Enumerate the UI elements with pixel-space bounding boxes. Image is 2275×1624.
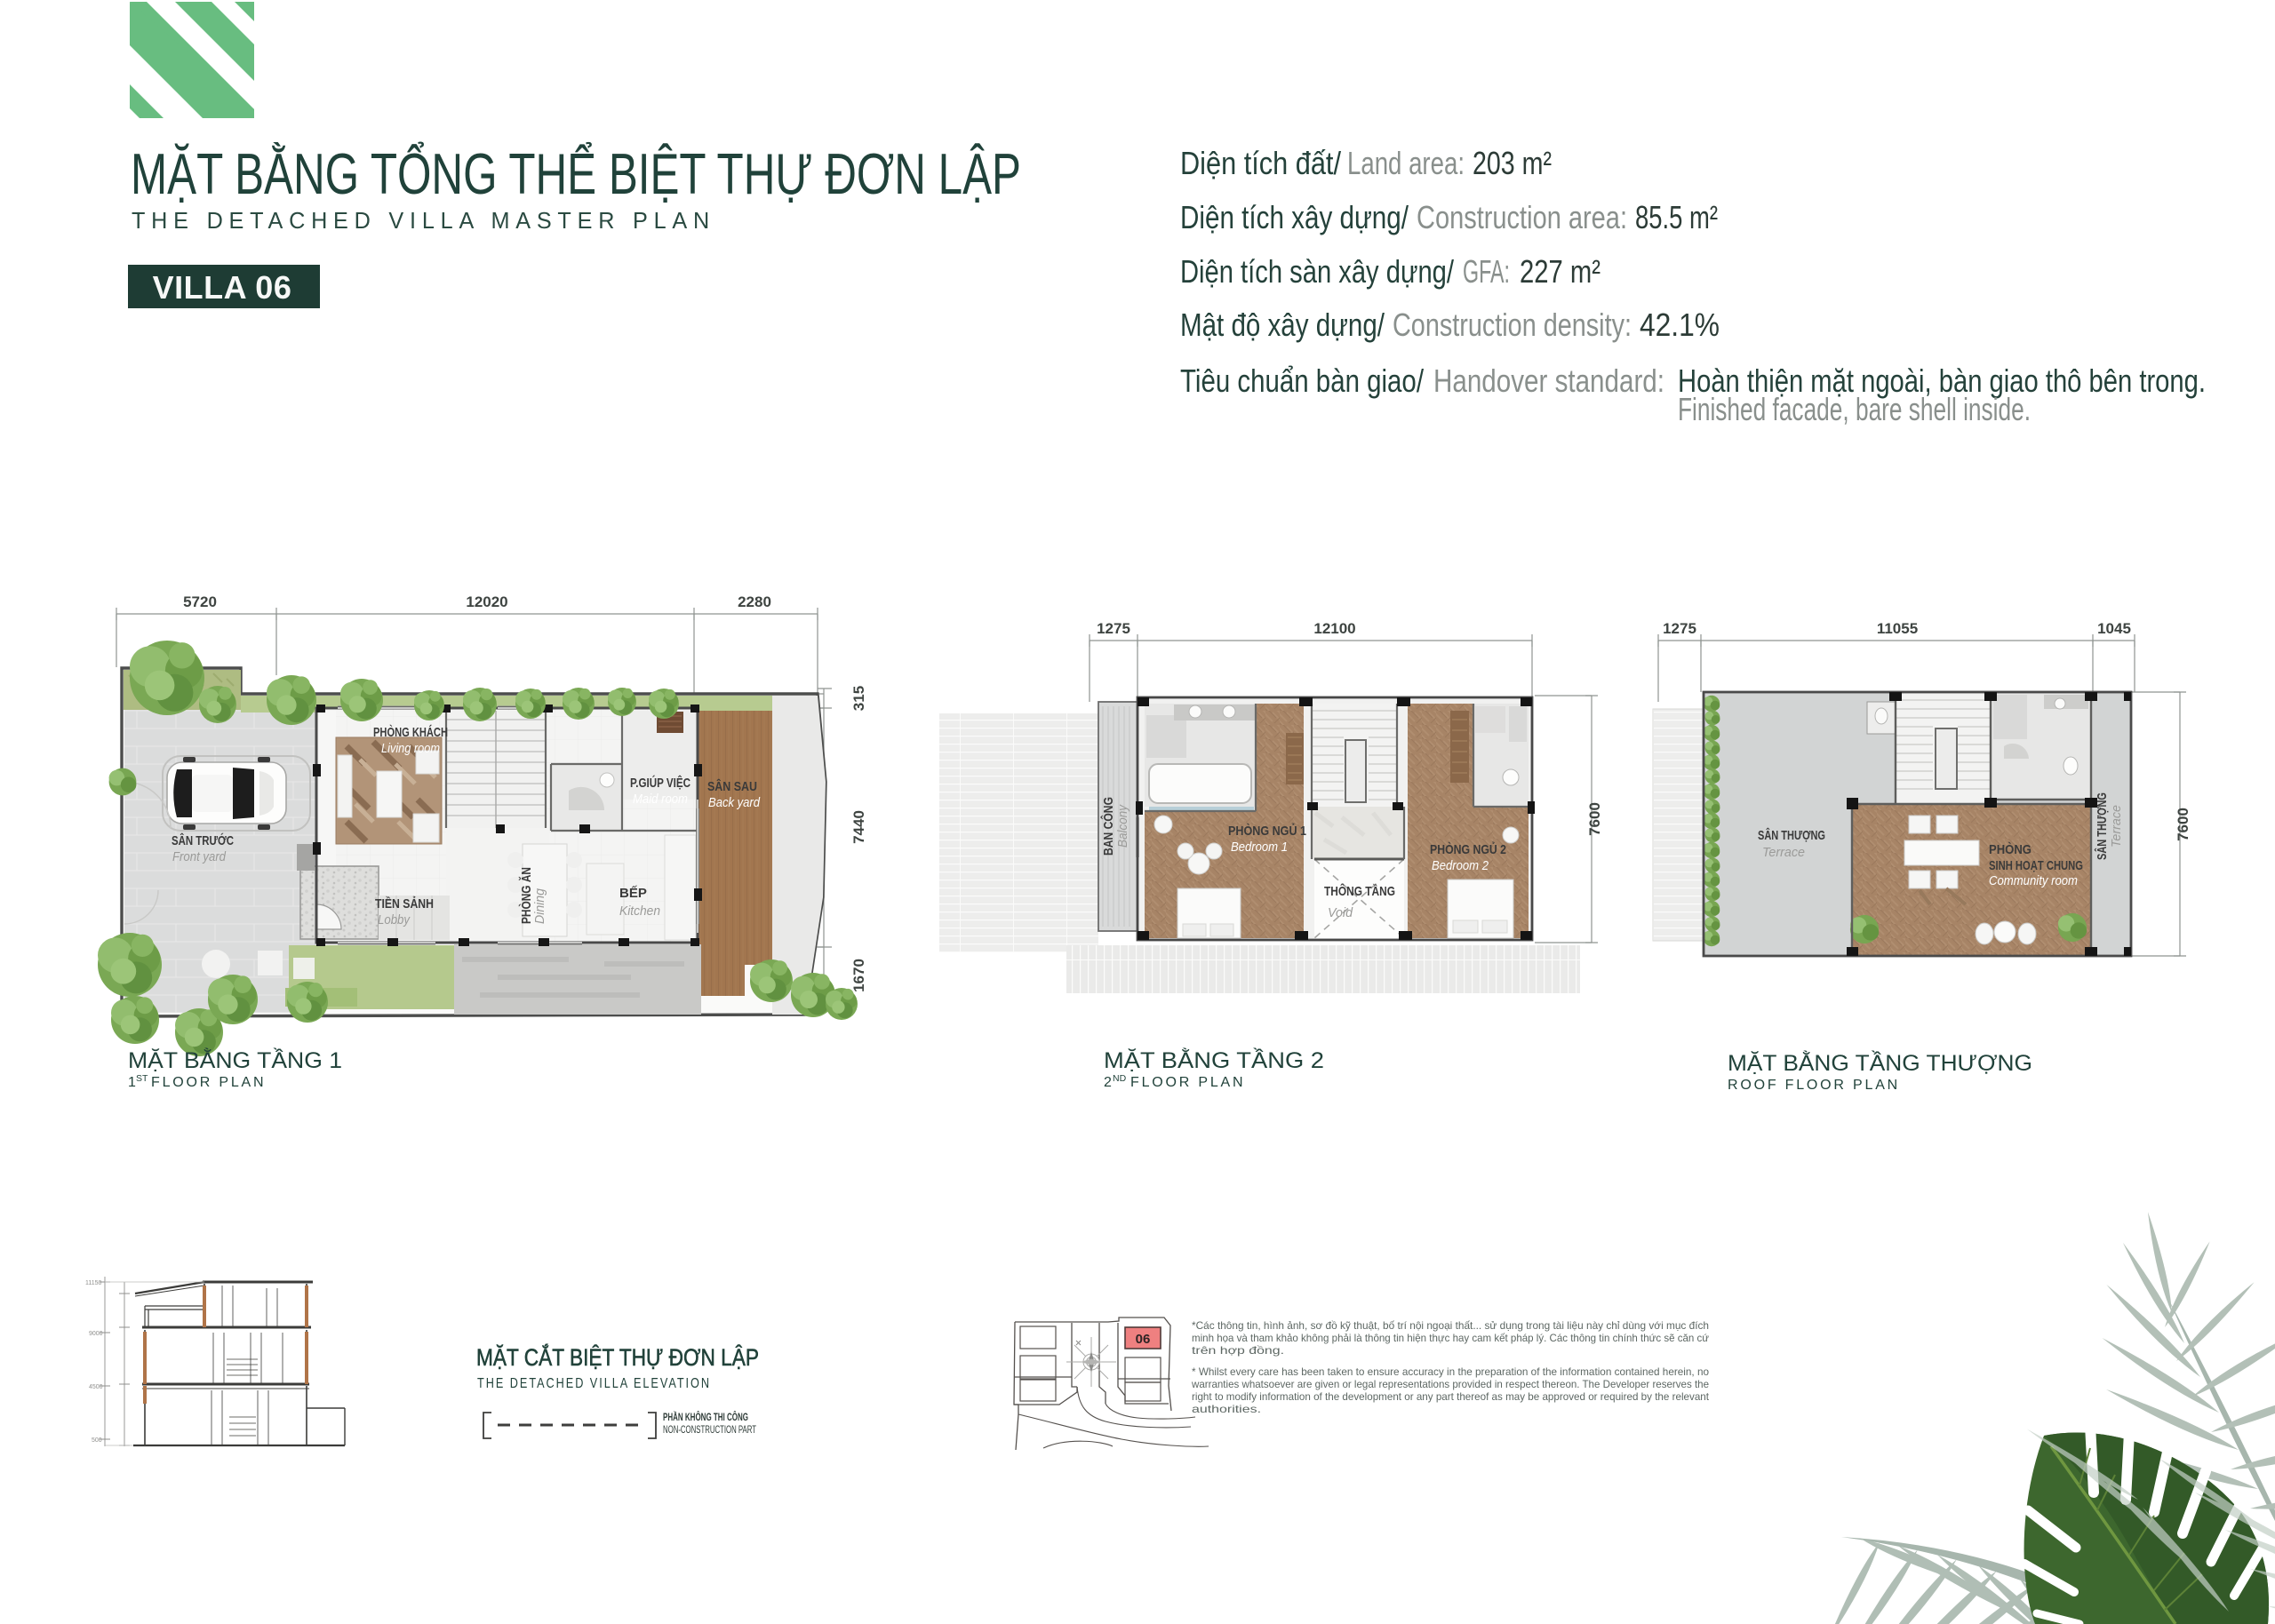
svg-text:FLOOR PLAN: FLOOR PLAN [151, 1075, 266, 1090]
svg-text:Dining: Dining [533, 888, 547, 924]
svg-text:Lobby: Lobby [378, 913, 411, 927]
svg-text:MẶT BẰNG TẦNG 1: MẶT BẰNG TẦNG 1 [128, 1047, 342, 1073]
svg-text:1045: 1045 [2097, 620, 2131, 637]
svg-text:Kitchen: Kitchen [619, 904, 660, 919]
svg-text:7600: 7600 [2175, 808, 2191, 841]
svg-text:MẶT BẰNG TẦNG THƯỢNG: MẶT BẰNG TẦNG THƯỢNG [1728, 1050, 2032, 1076]
svg-text:FLOOR PLAN: FLOOR PLAN [1130, 1075, 1245, 1090]
svg-text:warranties whatsoever are give: warranties whatsoever are given or legal… [1191, 1378, 1709, 1390]
svg-text:06: 06 [1136, 1332, 1151, 1347]
svg-text:PHÒNG NGỦ 2: PHÒNG NGỦ 2 [1430, 841, 1506, 857]
svg-text:11055: 11055 [1877, 620, 1918, 637]
svg-text:BẾP: BẾP [619, 886, 647, 901]
svg-text:85.5 m²: 85.5 m² [1635, 199, 1718, 235]
svg-text:Diện tích sàn xây dựng/: Diện tích sàn xây dựng/ [1180, 253, 1454, 290]
svg-text:Community room: Community room [1989, 874, 2078, 888]
svg-text:minh họa và tham khảo không ph: minh họa và tham khảo không phải là thôn… [1192, 1332, 1709, 1344]
svg-text:authorities.: authorities. [1192, 1403, 1261, 1415]
svg-text:2280: 2280 [738, 593, 771, 610]
svg-text:BAN CÔNG: BAN CÔNG [1100, 797, 1116, 856]
svg-text:trên hợp đồng.: trên hợp đồng. [1192, 1344, 1284, 1357]
svg-text:TIỀN SẢNH: TIỀN SẢNH [375, 896, 434, 912]
svg-text:PHÒNG: PHÒNG [1989, 841, 2032, 857]
svg-text:P.GIÚP VIỆC: P.GIÚP VIỆC [630, 775, 690, 791]
svg-text:right to modify information of: right to modify information of the devel… [1192, 1390, 1710, 1403]
svg-text:9000: 9000 [89, 1331, 103, 1337]
svg-text:7600: 7600 [1586, 802, 1603, 836]
svg-text:PHÒNG ĂN: PHÒNG ĂN [518, 867, 534, 924]
svg-text:Bedroom 1: Bedroom 1 [1231, 840, 1288, 855]
svg-text:7440: 7440 [850, 810, 867, 844]
svg-text:* Whilst every care has been t: * Whilst every care has been taken to en… [1192, 1365, 1709, 1378]
svg-text:5720: 5720 [183, 593, 217, 610]
svg-text:PHÒNG KHÁCH: PHÒNG KHÁCH [373, 724, 448, 740]
svg-text:THÔNG TẦNG: THÔNG TẦNG [1324, 883, 1395, 899]
svg-text:Mật độ xây dựng/: Mật độ xây dựng/ [1180, 306, 1385, 343]
svg-text:*Các thông tin, hình ảnh, sơ đ: *Các thông tin, hình ảnh, sơ đồ kỹ thuật… [1192, 1319, 1709, 1332]
svg-text:SÂN SAU: SÂN SAU [707, 778, 757, 794]
svg-text:GFA:: GFA: [1463, 253, 1510, 290]
svg-text:Tiêu chuẩn bàn giao/: Tiêu chuẩn bàn giao/ [1180, 362, 1424, 399]
svg-text:12020: 12020 [466, 593, 507, 610]
svg-text:THE DETACHED VILLA MASTER PLAN: THE DETACHED VILLA MASTER PLAN [132, 207, 715, 234]
svg-text:1275: 1275 [1663, 620, 1696, 637]
svg-text:NON-CONSTRUCTION PART: NON-CONSTRUCTION PART [663, 1423, 756, 1436]
svg-text:SÂN TRƯỚC: SÂN TRƯỚC [172, 832, 234, 848]
svg-text:PHẦN KHÔNG THI CÔNG: PHẦN KHÔNG THI CÔNG [663, 1410, 748, 1423]
svg-text:VILLA 06: VILLA 06 [153, 269, 292, 306]
svg-text:Land area:: Land area: [1347, 145, 1465, 181]
svg-text:1670: 1670 [850, 959, 867, 992]
svg-text:Bedroom 2: Bedroom 2 [1432, 859, 1489, 873]
svg-text:203 m²: 203 m² [1473, 145, 1552, 181]
svg-text:SINH HOẠT CHUNG: SINH HOẠT CHUNG [1989, 858, 2083, 873]
svg-text:Handover standard:: Handover standard: [1433, 362, 1664, 399]
svg-text:SÂN THƯỢNG: SÂN THƯỢNG [1758, 827, 1825, 843]
svg-text:227 m²: 227 m² [1520, 253, 1600, 290]
svg-text:Balcony: Balcony [1116, 804, 1130, 848]
svg-text:ND: ND [1113, 1073, 1127, 1084]
svg-text:Void: Void [1328, 906, 1353, 920]
svg-text:Diện tích đất/: Diện tích đất/ [1180, 145, 1341, 181]
svg-text:Maid room: Maid room [633, 792, 688, 807]
svg-text:ROOF FLOOR PLAN: ROOF FLOOR PLAN [1728, 1078, 1900, 1093]
svg-text:11150: 11150 [85, 1280, 102, 1286]
svg-text:Back yard: Back yard [708, 796, 761, 810]
svg-text:42.1%: 42.1% [1640, 306, 1720, 343]
svg-text:1: 1 [128, 1075, 136, 1090]
svg-text:Finished facade, bare shell in: Finished facade, bare shell inside. [1678, 391, 2031, 427]
svg-text:MẶT BẰNG TỔNG THỂ BIỆT THỰ ĐƠN: MẶT BẰNG TỔNG THỂ BIỆT THỰ ĐƠN LẬP [131, 141, 1021, 206]
svg-text:2: 2 [1104, 1075, 1112, 1090]
svg-text:MẶT BẰNG TẦNG 2: MẶT BẰNG TẦNG 2 [1104, 1047, 1324, 1073]
svg-text:THE DETACHED VILLA ELEVATION: THE DETACHED VILLA ELEVATION [477, 1376, 711, 1391]
svg-text:Construction area:: Construction area: [1417, 199, 1627, 235]
svg-text:4500: 4500 [89, 1384, 103, 1390]
svg-text:Front yard: Front yard [172, 850, 227, 864]
svg-text:PHÒNG NGỦ 1: PHÒNG NGỦ 1 [1228, 823, 1306, 839]
svg-text:ST: ST [136, 1073, 148, 1084]
svg-text:Living room: Living room [381, 742, 440, 756]
svg-text:MẶT CẮT BIỆT THỰ ĐƠN LẬP: MẶT CẮT BIỆT THỰ ĐƠN LẬP [476, 1343, 759, 1371]
svg-text:Diện tích xây dựng/: Diện tích xây dựng/ [1180, 199, 1409, 235]
svg-text:1275: 1275 [1097, 620, 1130, 637]
svg-text:Construction density:: Construction density: [1393, 306, 1632, 343]
svg-text:315: 315 [850, 686, 867, 711]
svg-text:Terrace: Terrace [1762, 846, 1805, 860]
svg-text:12100: 12100 [1313, 620, 1355, 637]
svg-text:500: 500 [92, 1437, 102, 1444]
svg-text:Terrace: Terrace [2110, 805, 2124, 848]
